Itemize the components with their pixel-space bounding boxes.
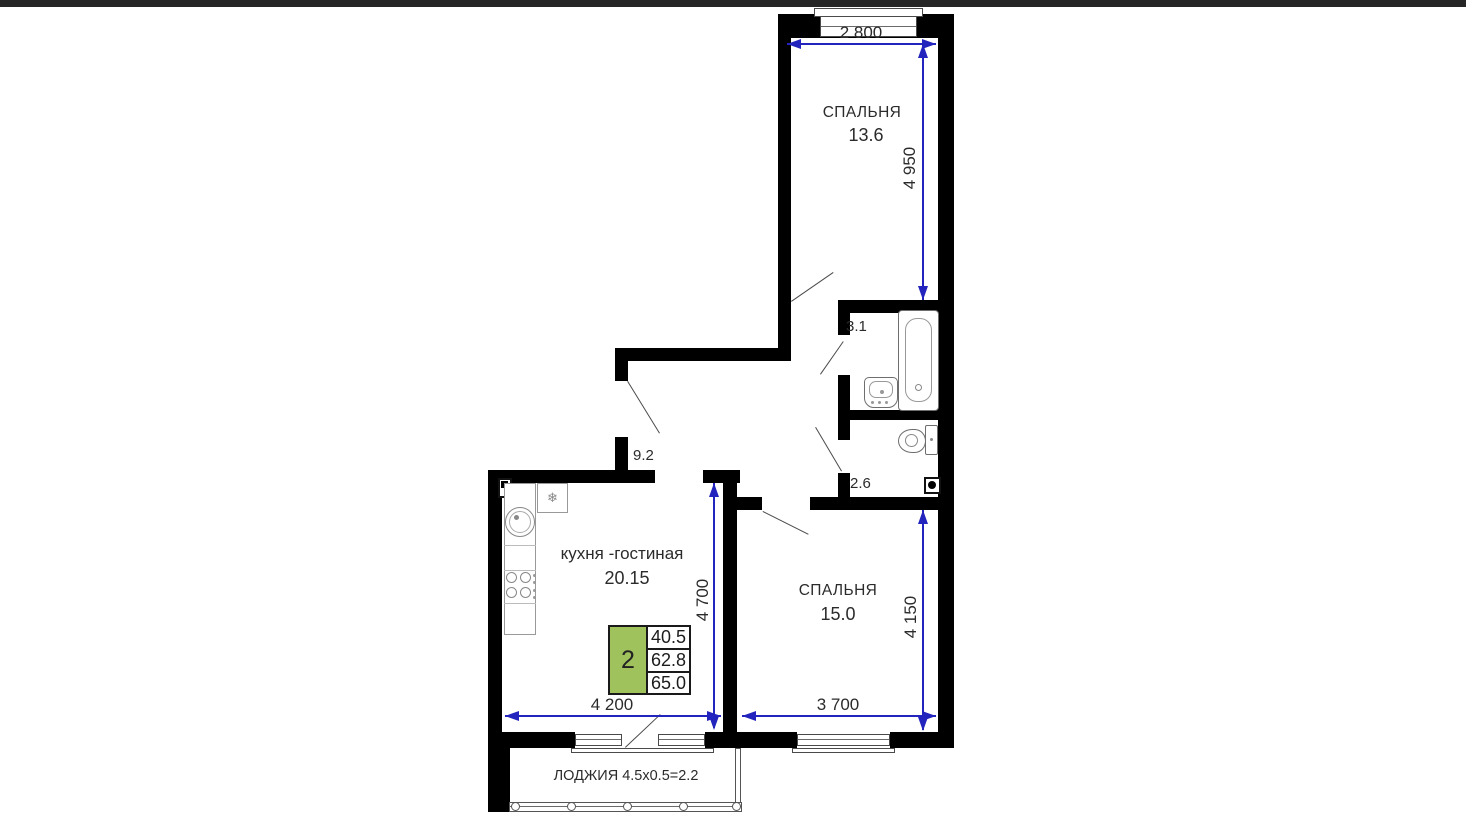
window-line [576,739,621,740]
room-area-bedroom1: 13.6 [806,125,926,146]
arrow-up-icon [918,510,928,524]
wall [705,732,737,748]
glazing-post-icon [679,802,688,811]
arrow-up-icon [918,44,928,58]
dimension-label: 3 700 [788,696,888,714]
counter-divider [504,570,536,571]
wall [488,732,575,748]
glazing-post-icon [511,802,520,811]
dimension-line [922,510,924,730]
door-swing-entrance [627,381,660,433]
info-area-value: 40.5 [648,627,689,650]
room-label-kitchen-living: кухня -гостиная [512,544,732,564]
info-box-areas: 40.5 62.8 65.0 [648,627,689,693]
toilet-tank-detail [930,438,933,441]
sink-drain-icon [880,390,884,394]
info-area-value: 65.0 [648,673,689,694]
rooms-count-cell: 2 [610,627,648,693]
wall [938,14,954,748]
stove-knob-dot [533,581,536,584]
wall [737,732,797,748]
dimension-label: 4 200 [562,696,662,714]
top-bar [0,0,1466,7]
room-area-hallway: 9.2 [633,447,654,464]
dimension-line [505,715,721,717]
vent-shaft-dot [928,481,936,489]
window-kitchen-right [658,734,705,746]
toilet-bowl-inner [905,434,918,447]
floor-plan-canvas: ЛОДЖИЯ 4.5x0.5=2.2 ❄ 2 800 4 950 [0,0,1466,826]
arrow-left-icon [505,711,519,721]
wall [737,497,762,510]
room-label-bedroom2: СПАЛЬНЯ [758,582,918,600]
arrow-right-icon [707,711,721,721]
wall [615,348,791,361]
stove-burner-icon [520,572,531,583]
stove-burner-icon [506,572,517,583]
room-area-bathroom: 3.1 [846,318,867,335]
wall [838,420,850,440]
wall [778,14,791,360]
room-label-bedroom1: СПАЛЬНЯ [782,104,942,122]
sink-detail [878,401,881,404]
bathtub-drain-icon [915,384,922,391]
stove-burner-icon [506,587,517,598]
wall [488,470,655,483]
wall [890,732,954,748]
loggia-label: ЛОДЖИЯ 4.5x0.5=2.2 [516,768,736,784]
wall [810,497,954,510]
kitchen-sink-inner [509,511,531,533]
wall [838,375,850,412]
fridge-icon: ❄ [537,483,568,513]
wall [615,361,628,381]
room-area-bedroom2: 15.0 [778,604,898,625]
arrow-down-icon [918,286,928,300]
arrow-right-icon [922,711,936,721]
wall [488,748,510,812]
door-swing-bedroom1 [791,272,834,302]
dimension-label: 4 700 [694,550,712,650]
dimension-label: 2 800 [811,24,911,42]
window-line [659,739,704,740]
stove-knob-dot [533,574,536,577]
stove-knob-dot [533,596,536,599]
wall [615,437,628,470]
window-sill [571,748,714,753]
dimension-line [742,715,936,717]
sink-detail [871,401,874,404]
window-sill [792,748,895,753]
window-bedroom2 [797,734,890,746]
wall [723,470,737,745]
window-kitchen-left [575,734,622,746]
sink-detail [885,401,888,404]
arrow-left-icon [742,711,756,721]
door-swing-bathroom [820,341,844,374]
glazing-post-icon [567,802,576,811]
room-area-toilet: 2.6 [850,475,871,492]
room-area-kitchen-living: 20.15 [567,568,687,589]
glazing-post-icon [623,802,632,811]
stove-burner-icon [520,587,531,598]
dimension-line [713,483,715,728]
apartment-info-box: 2 40.5 62.8 65.0 [608,625,691,695]
wall [488,470,502,748]
stove-knob-dot [533,589,536,592]
wall [838,473,850,499]
window-line [798,739,889,740]
dimension-line [787,43,936,45]
wall [838,410,954,420]
arrow-up-icon [709,483,719,497]
glazing-post-icon [732,802,741,811]
counter-divider [504,603,536,604]
kitchen-faucet-icon [514,515,519,520]
dimension-line [922,44,924,300]
arrow-left-icon [787,39,801,49]
info-area-value: 62.8 [648,650,689,673]
door-swing-bedroom2 [763,511,809,535]
